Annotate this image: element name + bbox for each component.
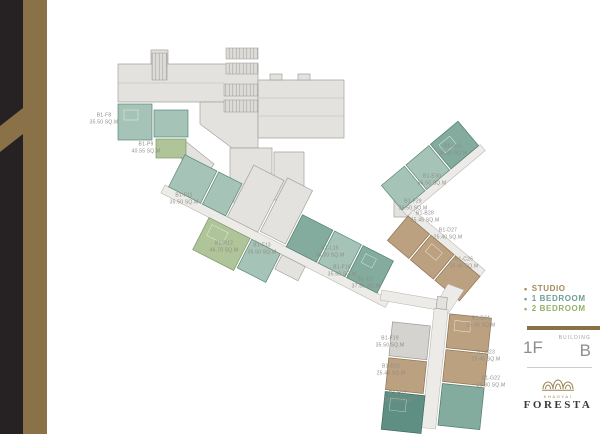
brand-crown-icon	[542, 375, 574, 391]
thin-divider	[527, 367, 592, 368]
corridor-connectors	[380, 284, 464, 314]
building-label: B	[580, 341, 591, 361]
wing-upper-left	[118, 104, 188, 158]
cluster-bottom	[381, 292, 493, 434]
floor-plan	[0, 0, 600, 434]
legend-item: •STUDIO	[524, 284, 586, 294]
page: B1-F835.50 SQ.MB1-P940.55 SQ.MB1-F1135.5…	[0, 0, 600, 434]
legend-list: •STUDIO•1 BEDROOM•2 BEDROOM	[524, 284, 586, 314]
brand-name: FORESTA	[516, 399, 600, 411]
wing-right-tan	[387, 210, 485, 301]
wing-right-teal	[381, 120, 485, 216]
legend-item: •2 BEDROOM	[524, 304, 586, 314]
gold-divider-bar	[527, 326, 600, 330]
legend-item: •1 BEDROOM	[524, 294, 586, 304]
info-panel: •STUDIO•1 BEDROOM•2 BEDROOM BUILDING 1F …	[516, 0, 600, 434]
floor-label: 1F	[523, 338, 543, 358]
